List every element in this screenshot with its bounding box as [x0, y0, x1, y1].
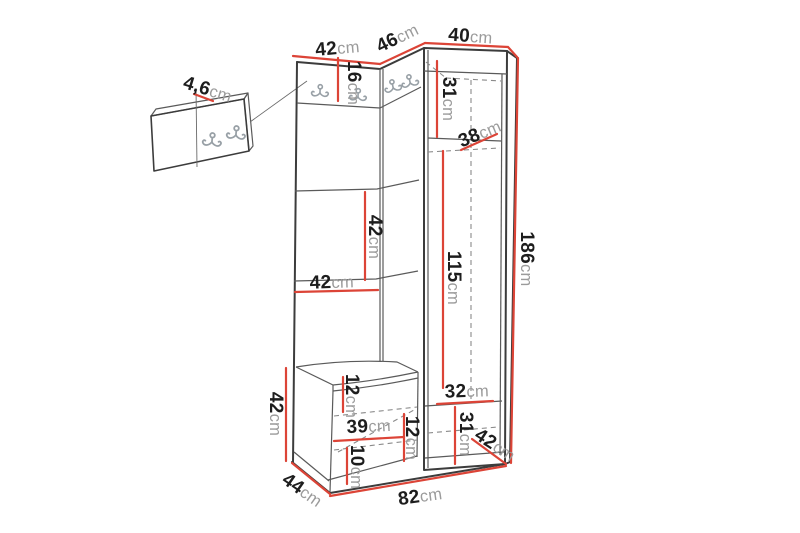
dim-label-top-left-width: 42cm: [315, 36, 361, 61]
dim-label-open-shelf-width: 42cm: [309, 271, 354, 294]
dim-line-bench-inner-width: [334, 437, 404, 441]
dim-label-bench-lower-clearance: 10cm: [346, 445, 367, 489]
dim-label-hook-panel-thickness: 4,6cm: [181, 72, 235, 107]
dim-label-total-width: 82cm: [397, 483, 444, 510]
dim-label-open-shelf-height: 42cm: [364, 215, 385, 259]
dim-label-total-height: 186cm: [516, 231, 537, 286]
dimension-labels: 42cm 46cm 40cm 4,6cm 16cm 31cm 38cm 115c…: [181, 19, 537, 512]
dim-label-bench-depth: 44cm: [278, 469, 326, 512]
dim-label-seat-inner-height: 12cm: [341, 374, 362, 418]
detail-pointer-line: [250, 81, 307, 122]
dim-label-cabinet-bottom-width: 32cm: [444, 380, 489, 403]
dim-label-top-right-width: 40cm: [448, 24, 494, 48]
coat-hook-icon: [226, 125, 245, 139]
dim-label-cabinet-top-height: 31cm: [438, 77, 459, 121]
coat-hook-icon: [311, 84, 328, 96]
seat-back-edge: [296, 361, 418, 372]
dim-label-bench-inner-width: 39cm: [346, 415, 391, 438]
diagram-canvas: 42cm 46cm 40cm 4,6cm 16cm 31cm 38cm 115c…: [0, 0, 800, 533]
shelf-seam-upper: [295, 180, 419, 191]
unit-left-edge: [293, 62, 297, 463]
dim-label-hook-band-height: 16cm: [343, 61, 364, 105]
detail-panel-front-face: [151, 99, 249, 171]
coat-hook-icon: [383, 78, 402, 93]
dim-label-cabinet-bottom-height: 31cm: [455, 412, 476, 456]
dim-label-bench-mid-clearance: 12cm: [401, 416, 422, 460]
dim-label-bench-height: 42cm: [265, 392, 286, 436]
cabinet-front-right-edge: [505, 51, 507, 464]
bench-front-left-edge: [330, 391, 333, 492]
extension-line: [196, 88, 197, 167]
coat-hook-icon: [400, 73, 419, 88]
furniture-dimension-diagram: 42cm 46cm 40cm 4,6cm 16cm 31cm 38cm 115c…: [0, 0, 800, 533]
dim-label-cabinet-inner-height: 115cm: [443, 251, 464, 305]
dim-label-corner-shelf-depth: 38cm: [455, 116, 504, 153]
coat-hook-icon: [202, 132, 221, 146]
